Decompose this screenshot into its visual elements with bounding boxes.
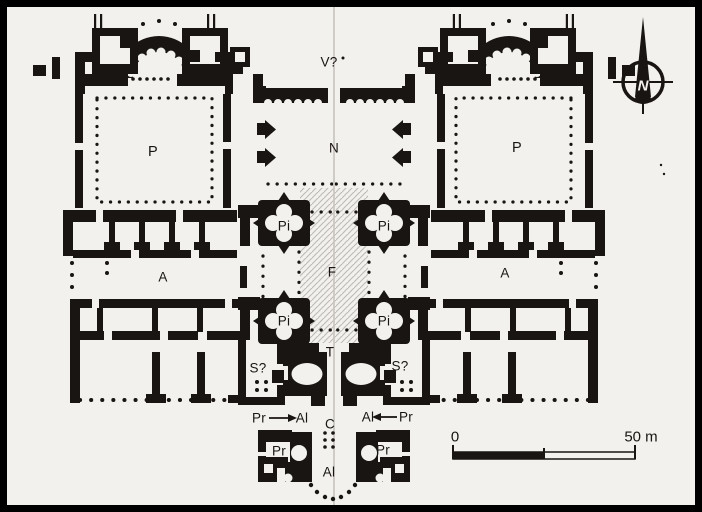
scale-start-label: 0	[451, 429, 459, 446]
scale-end-label: 50 m	[624, 429, 657, 446]
scale-bar-filled-half	[453, 452, 544, 459]
scanned-plan-page: V? N P P Pi Pi Pi Pi F A A T S? S? Pr Al…	[0, 0, 702, 512]
label-c-area: C	[325, 417, 335, 432]
label-chapel-right: Pr	[376, 443, 390, 458]
label-s-right: S?	[391, 359, 408, 374]
label-narthex: N	[329, 141, 339, 156]
compass-north-label: N	[638, 78, 650, 95]
label-arrow-left-to: Al	[296, 411, 309, 426]
label-t-area: T	[326, 345, 335, 360]
label-atrium-right: A	[500, 266, 509, 281]
label-atrium-left: A	[158, 270, 167, 285]
label-peristyle-right: P	[512, 140, 522, 156]
label-pier-ne: Pi	[378, 219, 391, 234]
label-pier-se: Pi	[378, 314, 391, 329]
label-arrow-left-from: Pr	[252, 411, 266, 426]
label-v-area: V?	[320, 55, 337, 70]
label-peristyle-left: P	[148, 144, 158, 160]
label-al-bottom: Al	[323, 465, 336, 480]
label-pier-nw: Pi	[278, 219, 291, 234]
label-s-left: S?	[249, 361, 266, 376]
floor-plan-drawing: V? N P P Pi Pi Pi Pi F A A T S? S? Pr Al…	[0, 0, 702, 512]
label-chapel-left: Pr	[272, 444, 286, 459]
label-arrow-right-to: Al	[362, 410, 375, 425]
label-f-area: F	[328, 265, 337, 280]
label-arrow-right-from: Pr	[399, 410, 413, 425]
label-pier-sw: Pi	[278, 314, 291, 329]
